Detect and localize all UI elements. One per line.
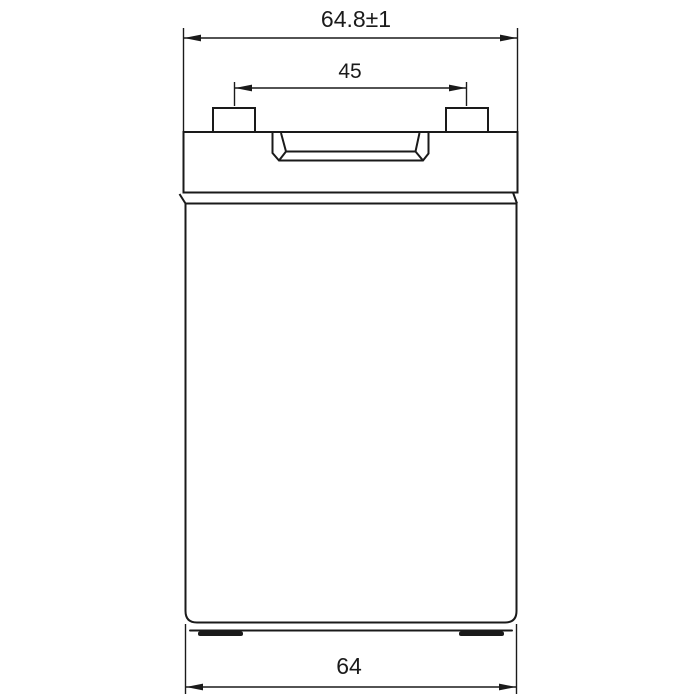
dimension-terminal-pitch: 45: [235, 60, 467, 106]
foot-pad-right: [459, 632, 504, 637]
technical-drawing-canvas: 64.8±1 45: [0, 0, 700, 700]
dimension-overall-width-label: 64.8±1: [321, 6, 391, 32]
terminal-left: [213, 108, 255, 132]
seam-right-chamfer: [513, 193, 517, 204]
dimension-terminal-pitch-label: 45: [338, 60, 361, 83]
arrowhead-right-icon: [449, 85, 466, 92]
lid-body-seam: [180, 193, 518, 204]
foot-pad-left: [198, 632, 243, 637]
arrowhead-left-icon: [184, 35, 201, 42]
arrowhead-left-icon: [186, 684, 203, 691]
seam-left-chamfer: [180, 194, 186, 204]
battery-outline: [180, 108, 518, 636]
arrowhead-right-icon: [500, 35, 517, 42]
dimension-base-width-label: 64: [336, 653, 362, 679]
drawing-page: 64.8±1 45: [0, 0, 700, 700]
arrowhead-left-icon: [235, 85, 252, 92]
battery-lid: [184, 132, 518, 193]
terminal-right: [446, 108, 488, 132]
battery-body: [186, 204, 517, 623]
arrowhead-right-icon: [499, 684, 516, 691]
